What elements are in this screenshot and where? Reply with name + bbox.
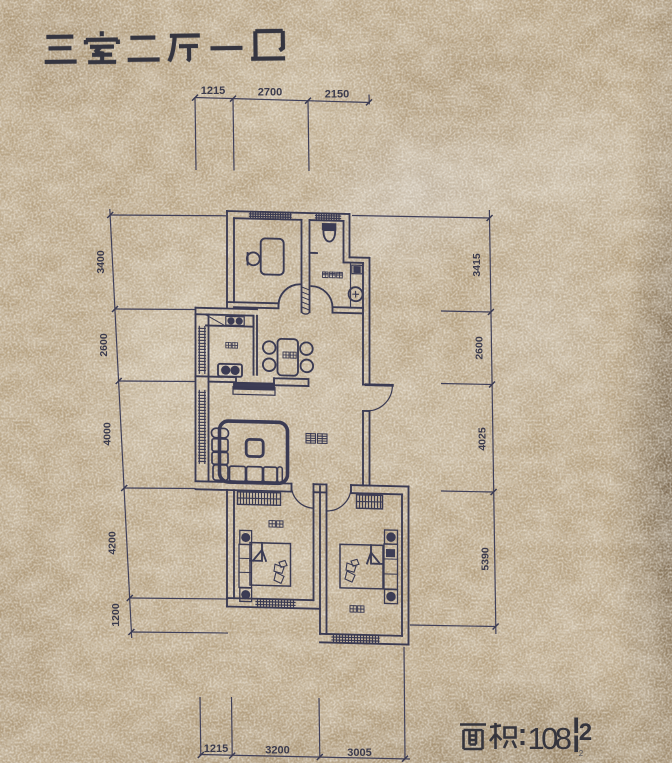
svg-text:4000: 4000 xyxy=(102,422,114,446)
svg-text:2150: 2150 xyxy=(325,89,349,101)
svg-text:2600: 2600 xyxy=(98,333,110,357)
svg-text:3400: 3400 xyxy=(95,250,107,274)
svg-text:2600: 2600 xyxy=(474,336,486,360)
svg-text:3200: 3200 xyxy=(265,745,289,757)
svg-text:4200: 4200 xyxy=(107,531,119,555)
svg-text:4025: 4025 xyxy=(477,427,489,451)
svg-text:2700: 2700 xyxy=(258,87,282,99)
svg-text:1200: 1200 xyxy=(110,603,122,627)
svg-text:2: 2 xyxy=(579,749,584,758)
svg-text:3005: 3005 xyxy=(347,747,371,759)
svg-text:2: 2 xyxy=(579,719,592,746)
svg-text:5390: 5390 xyxy=(480,547,492,571)
svg-text:108: 108 xyxy=(528,721,573,756)
svg-text:1215: 1215 xyxy=(201,85,225,97)
svg-text:3415: 3415 xyxy=(471,253,483,277)
svg-text:1215: 1215 xyxy=(204,743,228,755)
